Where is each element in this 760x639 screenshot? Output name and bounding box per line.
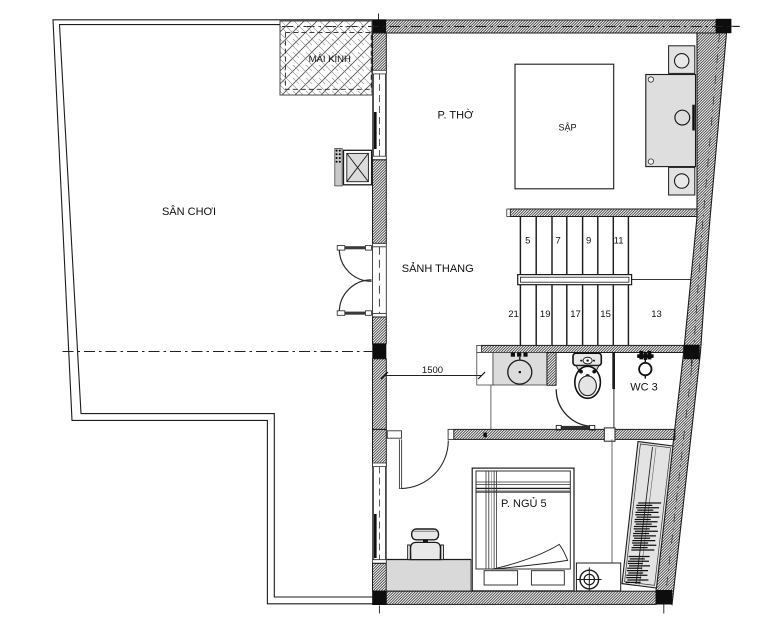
svg-text:MÁI KÍNH: MÁI KÍNH — [309, 54, 351, 65]
svg-text:P. NGỦ 5: P. NGỦ 5 — [501, 497, 547, 510]
svg-text:5: 5 — [525, 235, 530, 246]
svg-text:1500: 1500 — [422, 365, 443, 376]
svg-text:WC 3: WC 3 — [630, 382, 658, 394]
svg-text:9: 9 — [586, 235, 591, 246]
svg-text:7: 7 — [556, 235, 561, 246]
svg-text:13: 13 — [651, 309, 662, 320]
svg-text:SÂN CHƠI: SÂN CHƠI — [162, 205, 216, 218]
svg-text:P. THỜ: P. THỜ — [438, 109, 474, 122]
svg-text:SẬP: SẬP — [558, 123, 576, 133]
svg-text:11: 11 — [614, 235, 624, 246]
svg-text:15: 15 — [600, 309, 611, 320]
svg-text:21: 21 — [508, 309, 519, 320]
svg-text:19: 19 — [540, 309, 551, 320]
svg-text:SẢNH THANG: SẢNH THANG — [402, 262, 474, 275]
svg-text:17: 17 — [570, 309, 581, 320]
